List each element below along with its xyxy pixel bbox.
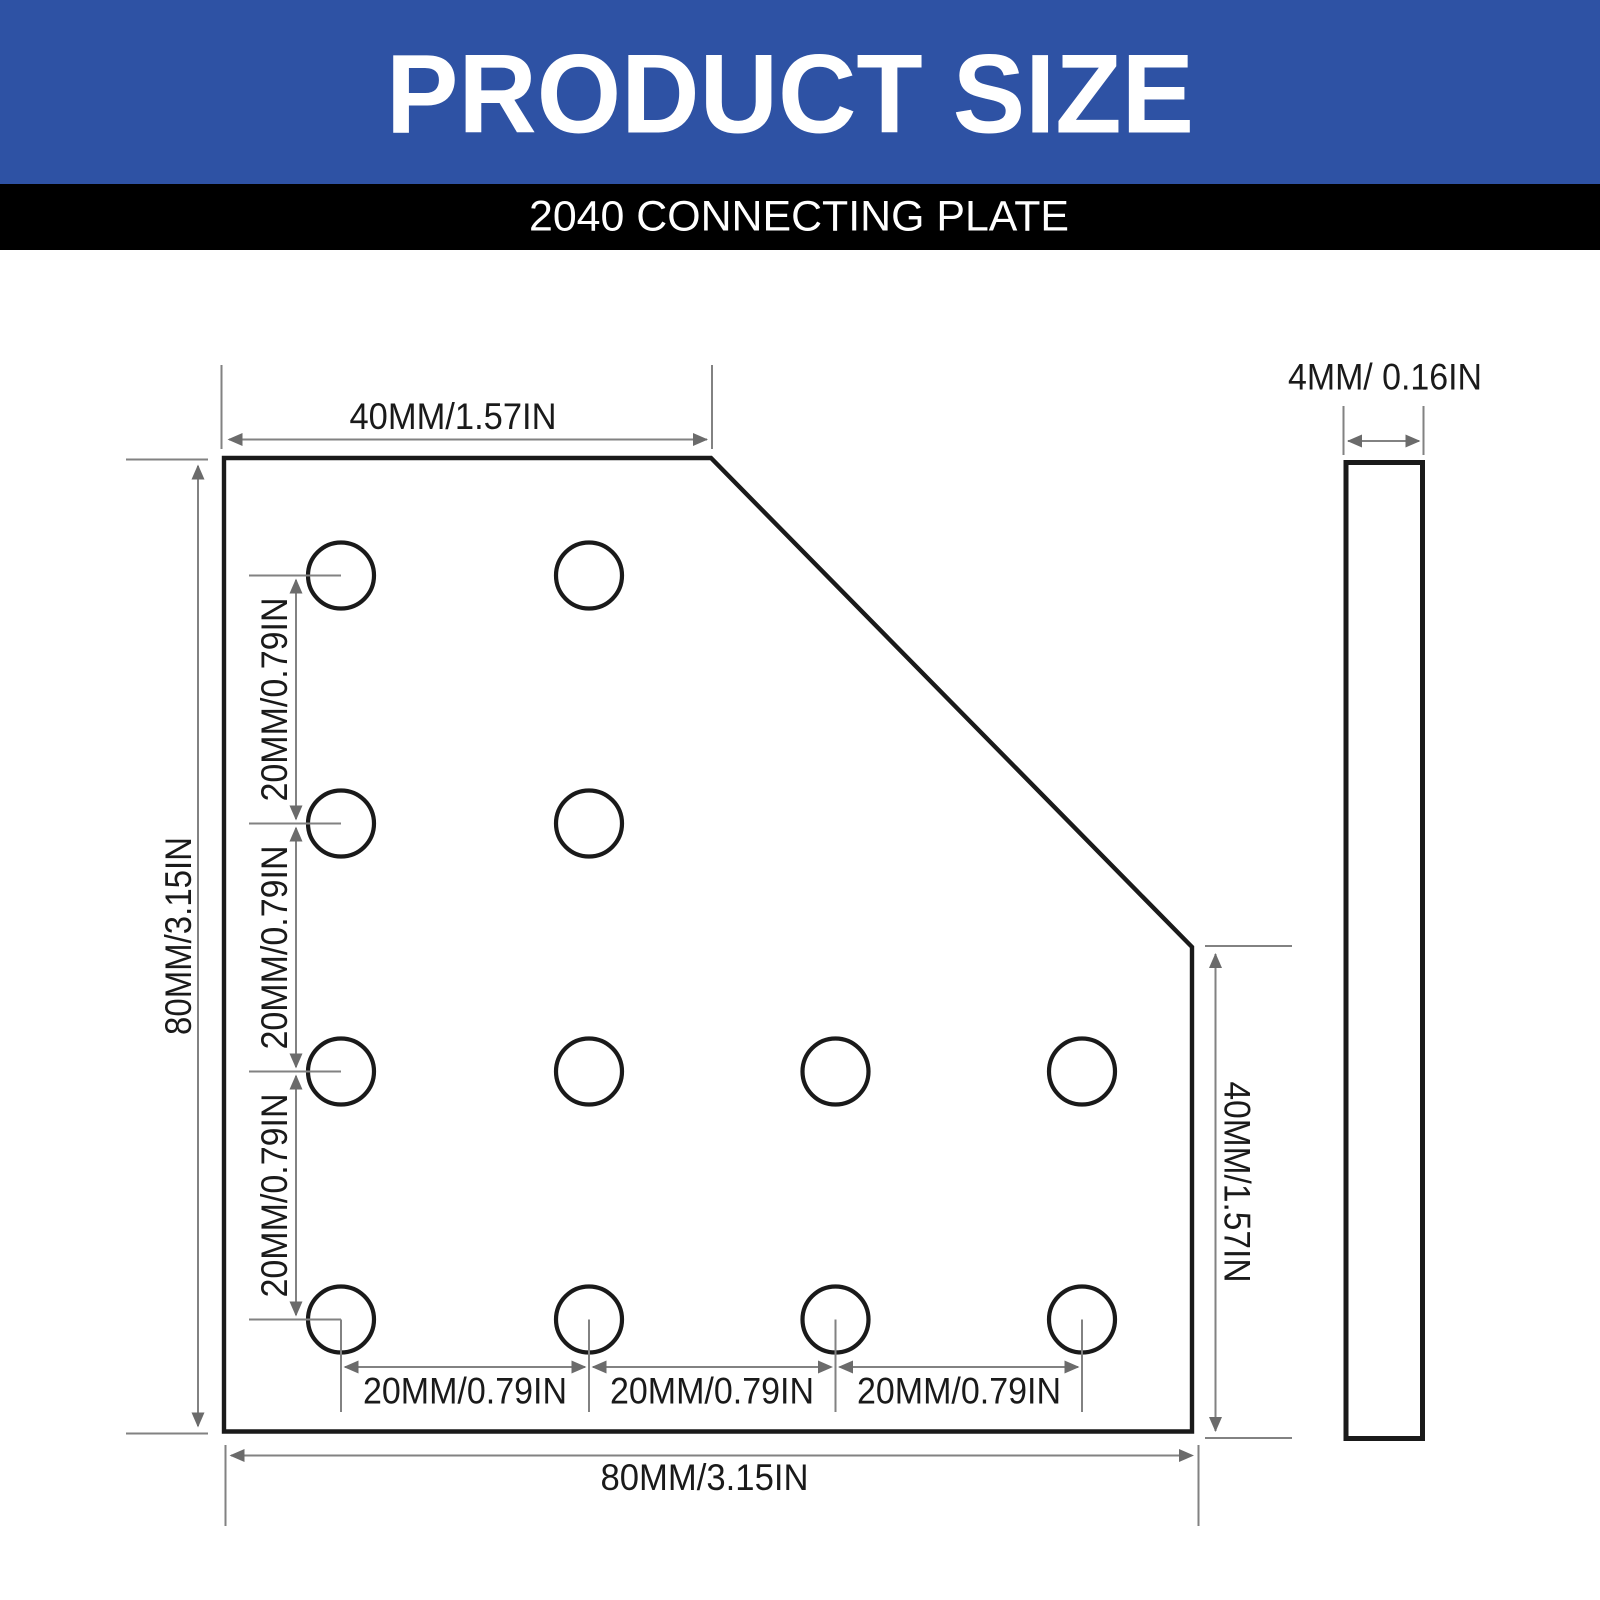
svg-text:PRODUCT SIZE: PRODUCT SIZE (386, 32, 1194, 157)
svg-text:80MM/3.15IN: 80MM/3.15IN (601, 1457, 809, 1498)
svg-text:2040 CONNECTING PLATE: 2040 CONNECTING PLATE (529, 193, 1069, 241)
svg-text:40MM/1.57IN: 40MM/1.57IN (1217, 1082, 1258, 1283)
svg-text:40MM/1.57IN: 40MM/1.57IN (350, 396, 557, 437)
svg-text:20MM/0.79IN: 20MM/0.79IN (254, 1094, 295, 1298)
svg-text:4MM/ 0.16IN: 4MM/ 0.16IN (1288, 357, 1482, 398)
svg-text:20MM/0.79IN: 20MM/0.79IN (363, 1371, 567, 1412)
svg-text:80MM/3.15IN: 80MM/3.15IN (158, 837, 199, 1035)
svg-text:20MM/0.79IN: 20MM/0.79IN (610, 1371, 814, 1412)
svg-text:20MM/0.79IN: 20MM/0.79IN (857, 1371, 1061, 1412)
svg-text:20MM/0.79IN: 20MM/0.79IN (254, 598, 295, 802)
svg-text:20MM/0.79IN: 20MM/0.79IN (254, 846, 295, 1050)
